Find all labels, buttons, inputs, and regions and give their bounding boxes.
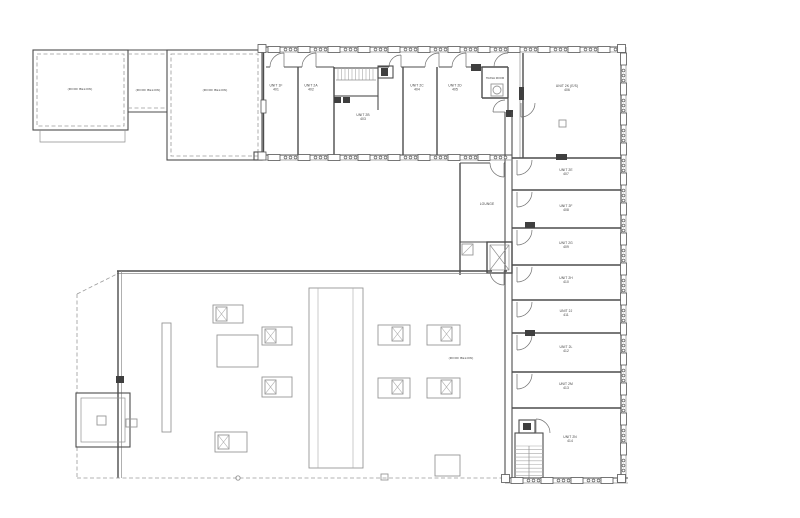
roof-below-label-1: (ROOF BELOW)	[68, 87, 93, 91]
long-table	[309, 288, 363, 468]
plan-labels: (ROOF BELOW) (ROOF BELOW) (ROOF BELOW) (…	[68, 76, 579, 443]
window-icon	[261, 100, 266, 113]
closet	[462, 244, 473, 255]
unit-406-number: 406	[564, 88, 570, 92]
unit-404-number: 404	[414, 88, 420, 92]
bench	[162, 323, 171, 432]
unit-401-number: 401	[273, 88, 279, 92]
unit-410-number: 410	[563, 280, 569, 284]
roof-deck	[76, 271, 507, 480]
table	[435, 455, 460, 476]
unit-403-number: 403	[360, 117, 366, 121]
roof-below-label-4: (ROOF BELOW)	[449, 356, 474, 360]
trash-room-label: TRASH ROOM	[486, 76, 505, 80]
corner-posts	[258, 45, 626, 483]
unit-408-number: 408	[563, 208, 569, 212]
stair-top	[334, 68, 378, 110]
table	[217, 335, 258, 367]
unit-405-number: 405	[452, 88, 458, 92]
stair-bottom	[515, 419, 550, 478]
unit-412-number: 412	[563, 349, 569, 353]
unit-402-number: 402	[308, 88, 314, 92]
roof-hatch	[76, 393, 130, 447]
roof-below-label-2: (ROOF BELOW)	[136, 88, 161, 92]
top-unit-block	[261, 52, 513, 155]
door-swing-icons	[270, 53, 466, 67]
unit-414-number: 414	[567, 439, 573, 443]
lounge-core	[460, 163, 512, 275]
deck-furniture	[213, 305, 460, 452]
floor-plan-canvas: (ROOF BELOW) (ROOF BELOW) (ROOF BELOW) (…	[0, 0, 800, 518]
door-swing-icons	[517, 160, 532, 389]
lounge-label: LOUNGE	[480, 202, 495, 206]
unit-407-number: 407	[563, 172, 569, 176]
floor-plan-drawing: (ROOF BELOW) (ROOF BELOW) (ROOF BELOW) (…	[0, 0, 800, 518]
unit-413-number: 413	[563, 386, 569, 390]
unit-411-number: 411	[563, 313, 569, 317]
roof-below-label-3: (ROOF BELOW)	[203, 88, 228, 92]
trash-room	[471, 53, 508, 98]
right-wing	[505, 53, 621, 478]
unit-409-number: 409	[563, 245, 569, 249]
elevator	[487, 242, 512, 273]
roof-areas	[33, 50, 263, 160]
